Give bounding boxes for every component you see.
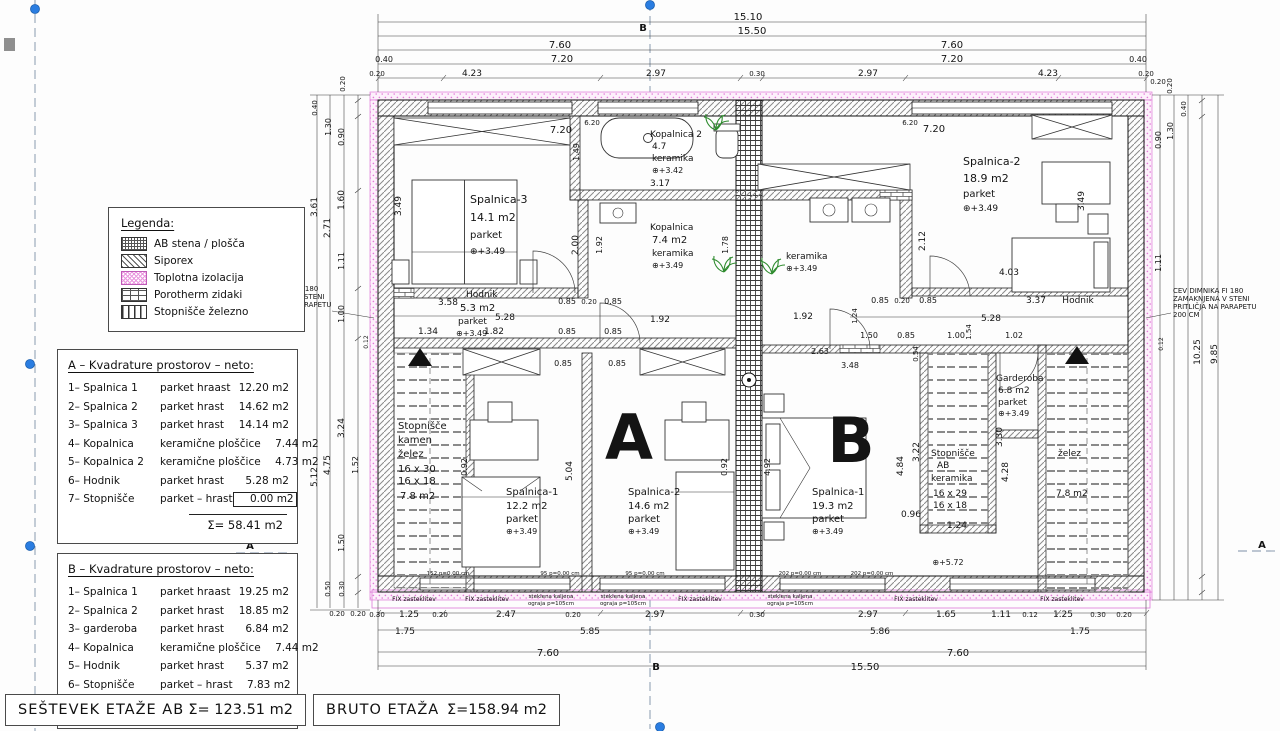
- plan-label: parket: [998, 398, 1027, 408]
- plan-label: Kopalnica 2: [650, 130, 702, 140]
- plan-label: 1.50: [337, 534, 346, 552]
- area-table-a-sum: Σ= 58.41 m2: [68, 514, 289, 533]
- plan-label: 0.20: [350, 610, 366, 618]
- plan-label: 1.24: [947, 521, 967, 531]
- plan-label: AB: [937, 461, 949, 471]
- plan-label: 0.20: [1150, 78, 1166, 86]
- plan-label: Spalnica-2: [628, 487, 680, 498]
- plan-label: 0.85: [871, 296, 889, 305]
- plan-label: parket: [470, 230, 502, 241]
- floor-total-ab: SEŠTEVEK ETAŽE AB Σ= 123.51 m2: [5, 694, 306, 726]
- plan-label: 0.40: [375, 55, 393, 64]
- area-table-row: 2– Spalnica 2parket hrast18.85 m2: [68, 602, 289, 621]
- plan-label: 0.50: [324, 581, 332, 597]
- plan-label: 1.65: [936, 610, 956, 620]
- plan-label: 3.49: [1077, 191, 1087, 211]
- plan-label: 4.23: [462, 69, 482, 79]
- room-material: parket hrast: [160, 657, 231, 676]
- plan-label: 1.34: [418, 327, 438, 337]
- plan-label: 0.85: [897, 331, 915, 340]
- room-name: 5– Hodnik: [68, 657, 160, 676]
- plan-label: FIX zasteklitev: [465, 596, 509, 603]
- floor-total-ab-value: Σ= 123.51 m2: [188, 702, 293, 718]
- gross-floor-total: BRUTO ETAŽA Σ=158.94 m2: [313, 694, 560, 726]
- plan-label: 0.40: [311, 100, 319, 116]
- legend-label: Stopnišče železno: [154, 306, 248, 318]
- plan-label: 0.30: [369, 611, 385, 619]
- plan-label: 9.85: [1210, 344, 1220, 364]
- gross-floor-total-value: Σ=158.94 m2: [447, 702, 547, 718]
- room-name: 4– Kopalnica: [68, 435, 160, 454]
- plan-label: 7.60: [947, 648, 969, 659]
- plan-label: 7.20: [551, 54, 573, 65]
- plan-label: 0.85: [604, 327, 622, 336]
- plan-label: 2.12: [918, 231, 928, 251]
- plan-label: 14.1 m2: [470, 211, 516, 224]
- plan-label: 0.20: [894, 297, 910, 305]
- plan-label: ⊕+3.49: [963, 204, 998, 214]
- plan-label: 1.30: [324, 118, 333, 136]
- floor-total-ab-label: SEŠTEVEK ETAŽE AB: [18, 702, 184, 718]
- plan-label: 2.97: [645, 610, 665, 620]
- area-table-row: 3– garderobaparket hrast6.84 m2: [68, 620, 289, 639]
- area-table-row: 5– Hodnikparket hrast5.37 m2: [68, 657, 289, 676]
- plan-label: 12.2 m2: [506, 501, 548, 512]
- plan-label: 0.54: [912, 346, 920, 362]
- plan-label: 202 p=0.00 cm: [779, 571, 822, 577]
- area-table-b-title: B – Kvadrature prostorov – neto:: [68, 562, 289, 576]
- room-material: keramične ploščice: [160, 639, 261, 658]
- plan-label: 0.92: [720, 458, 729, 476]
- plan-label: 1.75: [395, 627, 415, 637]
- plan-label: ⊕+3.49: [786, 264, 817, 273]
- plan-label: Garderoba: [996, 374, 1044, 384]
- plan-label: 7.60: [537, 648, 559, 659]
- plan-label: 202 p=0.00 cm: [851, 571, 894, 577]
- area-table-row: 1– Spalnica 1parket hraast12.20 m2: [68, 379, 289, 398]
- plan-label: 4.7: [652, 142, 666, 152]
- plan-label: 5.3 m2: [460, 303, 495, 314]
- plan-label: 0.12: [363, 335, 370, 349]
- plan-label: 2.47: [496, 610, 516, 620]
- plan-label: 0.90: [1154, 131, 1163, 149]
- area-table-row: 5– Kopalnica 2keramične ploščice4.73 m2: [68, 453, 289, 472]
- room-material: parket hrast: [160, 602, 231, 621]
- plan-label: 0.20: [565, 611, 581, 619]
- plan-label: 7.4 m2: [652, 235, 687, 246]
- plan-label: želez: [1058, 449, 1081, 459]
- plan-label: 4.23: [1038, 69, 1058, 79]
- plan-label: ograja p=105cm: [600, 601, 646, 607]
- plan-label: keramika: [931, 474, 972, 484]
- diagonal-swatch-icon: [121, 254, 147, 268]
- plan-label: 0.85: [558, 327, 576, 336]
- plan-label: 0.30: [749, 611, 765, 619]
- plan-label: 0.40: [1129, 55, 1147, 64]
- plan-label: 0.20: [339, 76, 347, 92]
- plan-label: 0.30: [1090, 611, 1106, 619]
- plan-label: 6.20: [584, 119, 600, 127]
- plan-label: FIX zasteklitev: [392, 596, 436, 603]
- plan-label: 5.86: [870, 627, 890, 637]
- plan-label: kamen: [398, 435, 432, 446]
- legend-label: Porotherm zidaki: [154, 289, 242, 301]
- room-name: 6– Hodnik: [68, 472, 160, 491]
- room-name: 7– Stopnišče: [68, 490, 160, 509]
- legend-label: Siporex: [154, 255, 193, 267]
- plan-label: 0.85: [604, 297, 622, 306]
- room-name: 1– Spalnica 1: [68, 379, 160, 398]
- plan-label: 7.20: [550, 125, 572, 136]
- plan-label: ⊕+3.49: [628, 527, 659, 536]
- room-name: 1– Spalnica 1: [68, 583, 160, 602]
- room-area: 7.44 m2: [261, 435, 319, 454]
- plan-label: 1.02: [1005, 331, 1023, 340]
- plan-label: 1.11: [337, 252, 346, 270]
- plan-label: ⊕+3.49: [812, 527, 843, 536]
- left-edge-marker: [4, 38, 15, 51]
- vertical-swatch-icon: [121, 305, 147, 319]
- plan-label: 4.03: [999, 268, 1019, 278]
- plan-label: 14.6 m2: [628, 501, 670, 512]
- unit-letter: A: [605, 401, 653, 474]
- plan-label: 2.63: [811, 347, 829, 356]
- area-table-row: 3– Spalnica 3parket hrast14.14 m2: [68, 416, 289, 435]
- section-line-handle[interactable]: [26, 542, 35, 551]
- plan-label: 15.10: [734, 12, 763, 23]
- area-table-row: 2– Spalnica 2parket hrast14.62 m2: [68, 398, 289, 417]
- area-table-b-rows: 1– Spalnica 1parket hraast19.25 m22– Spa…: [68, 583, 289, 694]
- plan-label: 1.92: [595, 236, 604, 254]
- plan-label: Hodnik: [466, 290, 498, 300]
- plan-label: 0.20: [329, 610, 345, 618]
- plan-label: 3.22: [912, 442, 922, 462]
- plan-label: Spalnica-2: [963, 155, 1021, 168]
- plan-label: 16 x 18: [398, 476, 436, 487]
- plan-label: B: [652, 662, 660, 673]
- plan-label: 1.92: [650, 315, 670, 325]
- plan-label: ⊕+3.49: [470, 247, 505, 257]
- area-table-row: 4– Kopalnicakeramične ploščice7.44 m2: [68, 435, 289, 454]
- room-area: 5.28 m2: [231, 472, 289, 491]
- plan-label: 1.78: [721, 236, 730, 254]
- plan-label: 1.92: [793, 312, 813, 322]
- room-area: 14.14 m2: [231, 416, 289, 435]
- plan-label: 0.96: [901, 510, 921, 520]
- legend-item: AB stena / plošča: [121, 237, 294, 251]
- section-line-handle[interactable]: [656, 723, 665, 731]
- plan-label: 3.24: [337, 418, 347, 438]
- plan-label: Spalnica-3: [470, 193, 528, 206]
- speckle-swatch-icon: [121, 271, 147, 285]
- plan-label: 5.04: [565, 461, 575, 481]
- brick-swatch-icon: [121, 288, 147, 302]
- plan-label: 0.30: [749, 70, 765, 78]
- plan-label: parket: [963, 189, 995, 200]
- area-table-row: 6– Stopniščeparket – hrast7.83 m2: [68, 676, 289, 695]
- plan-label: 1.00: [337, 305, 346, 323]
- legend-item: Porotherm zidaki: [121, 288, 294, 302]
- room-area: 0.00 m2: [233, 492, 297, 507]
- plan-label: keramika: [652, 249, 693, 259]
- room-area: 5.37 m2: [231, 657, 289, 676]
- plan-label: 2.97: [858, 69, 878, 79]
- plan-label: 15.50: [738, 26, 767, 37]
- plan-label: ⊕+3.49: [998, 409, 1029, 418]
- plan-label: 16 x 29: [933, 489, 967, 499]
- plan-label: 5.85: [580, 627, 600, 637]
- plan-label: ZAMAKNJENA V STENI: [1173, 295, 1249, 303]
- plan-label: 0.12: [1158, 337, 1165, 351]
- plan-label: 2.00: [571, 235, 581, 255]
- plan-label: 16 x 18: [933, 501, 967, 511]
- plan-label: 1.00: [947, 331, 965, 340]
- plan-label: 4.28: [1001, 462, 1011, 482]
- room-area: 12.20 m2: [231, 379, 289, 398]
- gross-floor-total-label: BRUTO ETAŽA: [326, 702, 439, 718]
- plan-label: 1.49: [572, 143, 581, 161]
- room-material: parket hrast: [160, 416, 231, 435]
- section-line-handle[interactable]: [26, 360, 35, 369]
- plan-label: 0.40: [1180, 101, 1188, 117]
- plan-label: 0.92: [460, 458, 469, 476]
- room-material: parket hrast: [160, 620, 231, 639]
- plan-label: 1.50: [860, 331, 878, 340]
- room-area: 19.25 m2: [231, 583, 289, 602]
- plan-label: steklena kaljena: [768, 594, 813, 600]
- plan-label: A: [1258, 540, 1266, 551]
- plan-label: 19.3 m2: [812, 501, 854, 512]
- plan-label: Kopalnica: [650, 223, 693, 233]
- plan-label: 0.20: [1116, 611, 1132, 619]
- room-area: 18.85 m2: [231, 602, 289, 621]
- room-area: 6.84 m2: [231, 620, 289, 639]
- plan-label: 0.85: [554, 359, 572, 368]
- plan-label: 3.30: [995, 427, 1005, 447]
- plan-label: ⊕+3.49: [506, 527, 537, 536]
- area-table-row: 4– Kopalnicakeramične ploščice7.44 m2: [68, 639, 289, 658]
- plan-label: 6.8 m2: [998, 386, 1030, 396]
- plan-label: 0.20: [432, 611, 448, 619]
- plan-label: 1.30: [1166, 122, 1175, 140]
- plan-label: 16 x 30: [398, 464, 436, 475]
- plan-label: FIX zasteklitev: [1040, 596, 1084, 603]
- plan-label: ⊕+5.72: [932, 558, 963, 567]
- plan-label: 0.85: [608, 359, 626, 368]
- plan-label: PRITLIČJA NA PARAPETU: [1173, 302, 1256, 311]
- plan-label: 1.24: [851, 308, 859, 324]
- room-material: keramične ploščice: [160, 453, 261, 472]
- plan-label: 4.92: [763, 458, 772, 476]
- plan-label: parket: [628, 514, 660, 525]
- plan-label: 7.60: [941, 40, 963, 51]
- room-area: 7.83 m2: [233, 676, 291, 695]
- area-table-a-title: A – Kvadrature prostorov – neto:: [68, 358, 289, 372]
- plan-label: FIX zasteklitev: [894, 596, 938, 603]
- plan-label: 3.61: [310, 197, 320, 217]
- plan-label: 7.8 m2: [400, 491, 435, 502]
- plan-label: 15.50: [851, 662, 880, 673]
- plan-label: CEV DIMNIKA FI 180: [1173, 287, 1243, 295]
- plan-label: 1.52: [351, 456, 360, 474]
- plan-label: 4.84: [896, 456, 906, 476]
- section-line-handle[interactable]: [31, 5, 40, 14]
- plan-label: 0.20: [581, 298, 597, 306]
- plan-label: 0.90: [337, 128, 346, 146]
- plan-label: 3.17: [650, 179, 670, 189]
- plan-label: 18.9 m2: [963, 172, 1009, 185]
- room-material: parket hrast: [160, 398, 231, 417]
- plan-label: ⊕+3.42: [652, 166, 683, 175]
- plan-label: 0.12: [1022, 611, 1038, 619]
- plan-label: 152 p=0.00 cm: [427, 571, 470, 577]
- room-material: parket – hrast: [160, 676, 233, 695]
- unit-letter: B: [827, 404, 874, 477]
- legend-item: Toplotna izolacija: [121, 271, 294, 285]
- plan-label: parket: [812, 514, 844, 525]
- plan-label: želez: [398, 448, 424, 460]
- plan-label: 200 CM: [1173, 311, 1200, 319]
- area-table-row: 1– Spalnica 1parket hraast19.25 m2: [68, 583, 289, 602]
- plan-label: ⊕+3.49: [652, 261, 683, 270]
- plan-label: parket: [458, 317, 487, 327]
- plan-label: 1.25: [399, 610, 419, 620]
- plan-label: ⊕+3.49: [456, 329, 487, 338]
- plan-label: 5.28: [981, 314, 1001, 324]
- crosshatch-swatch-icon: [121, 237, 147, 251]
- plan-label: 3.49: [394, 196, 404, 216]
- plan-label: Spalnica-1: [812, 487, 864, 498]
- legend-items: AB stena / ploščaSiporexToplotna izolaci…: [121, 237, 294, 319]
- legend-label: AB stena / plošča: [154, 238, 245, 250]
- plan-label: 95 p=0.00 cm: [540, 571, 579, 577]
- legend-label: Toplotna izolacija: [154, 272, 244, 284]
- section-line-handle[interactable]: [646, 1, 655, 10]
- plan-label: 0.20: [369, 70, 385, 78]
- room-name: 3– Spalnica 3: [68, 416, 160, 435]
- room-material: parket hrast: [160, 472, 231, 491]
- plan-label: 7.20: [941, 54, 963, 65]
- plan-label: Hodnik: [1062, 296, 1094, 306]
- room-area: 14.62 m2: [231, 398, 289, 417]
- plan-label: 4.75: [323, 455, 333, 475]
- plan-label: FIX zasteklitev: [678, 596, 722, 603]
- plan-label: steklena kaljena: [601, 594, 646, 600]
- plan-label: 0.20: [1166, 78, 1174, 94]
- plan-label: 3.48: [841, 361, 859, 370]
- room-name: 6– Stopnišče: [68, 676, 160, 695]
- room-area: 4.73 m2: [261, 453, 319, 472]
- area-table-a: A – Kvadrature prostorov – neto: 1– Spal…: [57, 349, 298, 544]
- plan-label: 0.30: [338, 581, 346, 597]
- plan-label: 10.25: [1193, 339, 1203, 365]
- plan-label: ograja p=105cm: [767, 601, 813, 607]
- area-table-a-rows: 1– Spalnica 1parket hraast12.20 m22– Spa…: [68, 379, 289, 509]
- plan-label: 0.85: [919, 296, 937, 305]
- plan-label: 7.60: [549, 40, 571, 51]
- plan-label: 0.85: [558, 297, 576, 306]
- room-material: keramične ploščice: [160, 435, 261, 454]
- room-area: 7.44 m2: [261, 639, 319, 658]
- plan-label: Spalnica-1: [506, 487, 558, 498]
- plan-label: keramika: [786, 252, 827, 262]
- plan-label: 1.11: [991, 610, 1011, 620]
- plan-label: Stopnišče: [398, 420, 447, 432]
- plan-label: 1.11: [1154, 254, 1163, 272]
- plan-label: parket: [506, 514, 538, 525]
- legend-panel: Legenda: AB stena / ploščaSiporexToplotn…: [108, 207, 305, 332]
- plan-label: 0.20: [1138, 70, 1154, 78]
- room-material: parket – hrast: [160, 490, 233, 509]
- plan-label: 6.20: [902, 119, 918, 127]
- room-name: 5– Kopalnica 2: [68, 453, 160, 472]
- plan-label: 1.54: [965, 324, 973, 340]
- plan-label: 7.8 m2: [1056, 489, 1088, 499]
- room-name: 2– Spalnica 2: [68, 602, 160, 621]
- plan-label: Stopnišče: [931, 448, 975, 459]
- plan-label: 5.28: [495, 313, 515, 323]
- plan-label: 3.37: [1026, 296, 1046, 306]
- legend-title: Legenda:: [121, 216, 294, 230]
- toilet-icon: [716, 128, 738, 158]
- room-name: 2– Spalnica 2: [68, 398, 160, 417]
- plan-label: 7.20: [923, 124, 945, 135]
- room-name: 3– garderoba: [68, 620, 160, 639]
- plan-label: 1.25: [1053, 610, 1073, 620]
- plan-label: 1.75: [1070, 627, 1090, 637]
- plan-label: B: [639, 23, 647, 34]
- plan-label: 1.82: [484, 327, 504, 337]
- legend-item: Siporex: [121, 254, 294, 268]
- plan-label: 2.97: [646, 69, 666, 79]
- room-name: 4– Kopalnica: [68, 639, 160, 658]
- plan-label: 2.71: [323, 218, 333, 238]
- plan-label: 95 p=0.00 cm: [625, 571, 664, 577]
- plan-label: keramika: [652, 154, 693, 164]
- legend-item: Stopnišče železno: [121, 305, 294, 319]
- room-material: parket hraast: [160, 583, 231, 602]
- plan-label: 2.97: [858, 610, 878, 620]
- plan-label: ograja p=105cm: [528, 601, 574, 607]
- plan-label: steklena kaljena: [529, 594, 574, 600]
- area-table-row: 6– Hodnikparket hrast5.28 m2: [68, 472, 289, 491]
- plan-label: 1.60: [337, 190, 347, 210]
- room-material: parket hraast: [160, 379, 231, 398]
- plan-label: 3.58: [438, 298, 458, 308]
- area-table-row: 7– Stopniščeparket – hrast0.00 m2: [68, 490, 289, 509]
